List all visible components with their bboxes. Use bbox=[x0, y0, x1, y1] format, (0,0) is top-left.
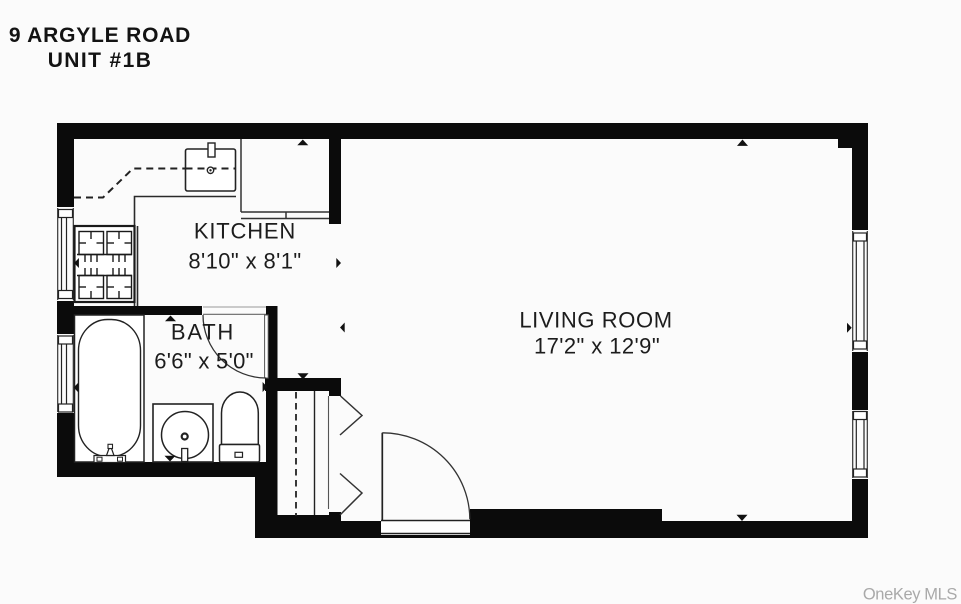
svg-text:KITCHEN: KITCHEN bbox=[194, 219, 296, 244]
svg-text:BATH: BATH bbox=[171, 320, 235, 345]
svg-text:6'6" x 5'0": 6'6" x 5'0" bbox=[154, 349, 254, 374]
svg-text:LIVING ROOM: LIVING ROOM bbox=[519, 308, 672, 333]
svg-text:UNIT #1B: UNIT #1B bbox=[48, 49, 153, 72]
svg-text:8'10" x 8'1": 8'10" x 8'1" bbox=[188, 249, 301, 274]
svg-text:9 ARGYLE ROAD: 9 ARGYLE ROAD bbox=[9, 24, 191, 47]
svg-text:17'2" x 12'9": 17'2" x 12'9" bbox=[534, 334, 660, 359]
svg-text:OneKey MLS: OneKey MLS bbox=[863, 586, 958, 604]
